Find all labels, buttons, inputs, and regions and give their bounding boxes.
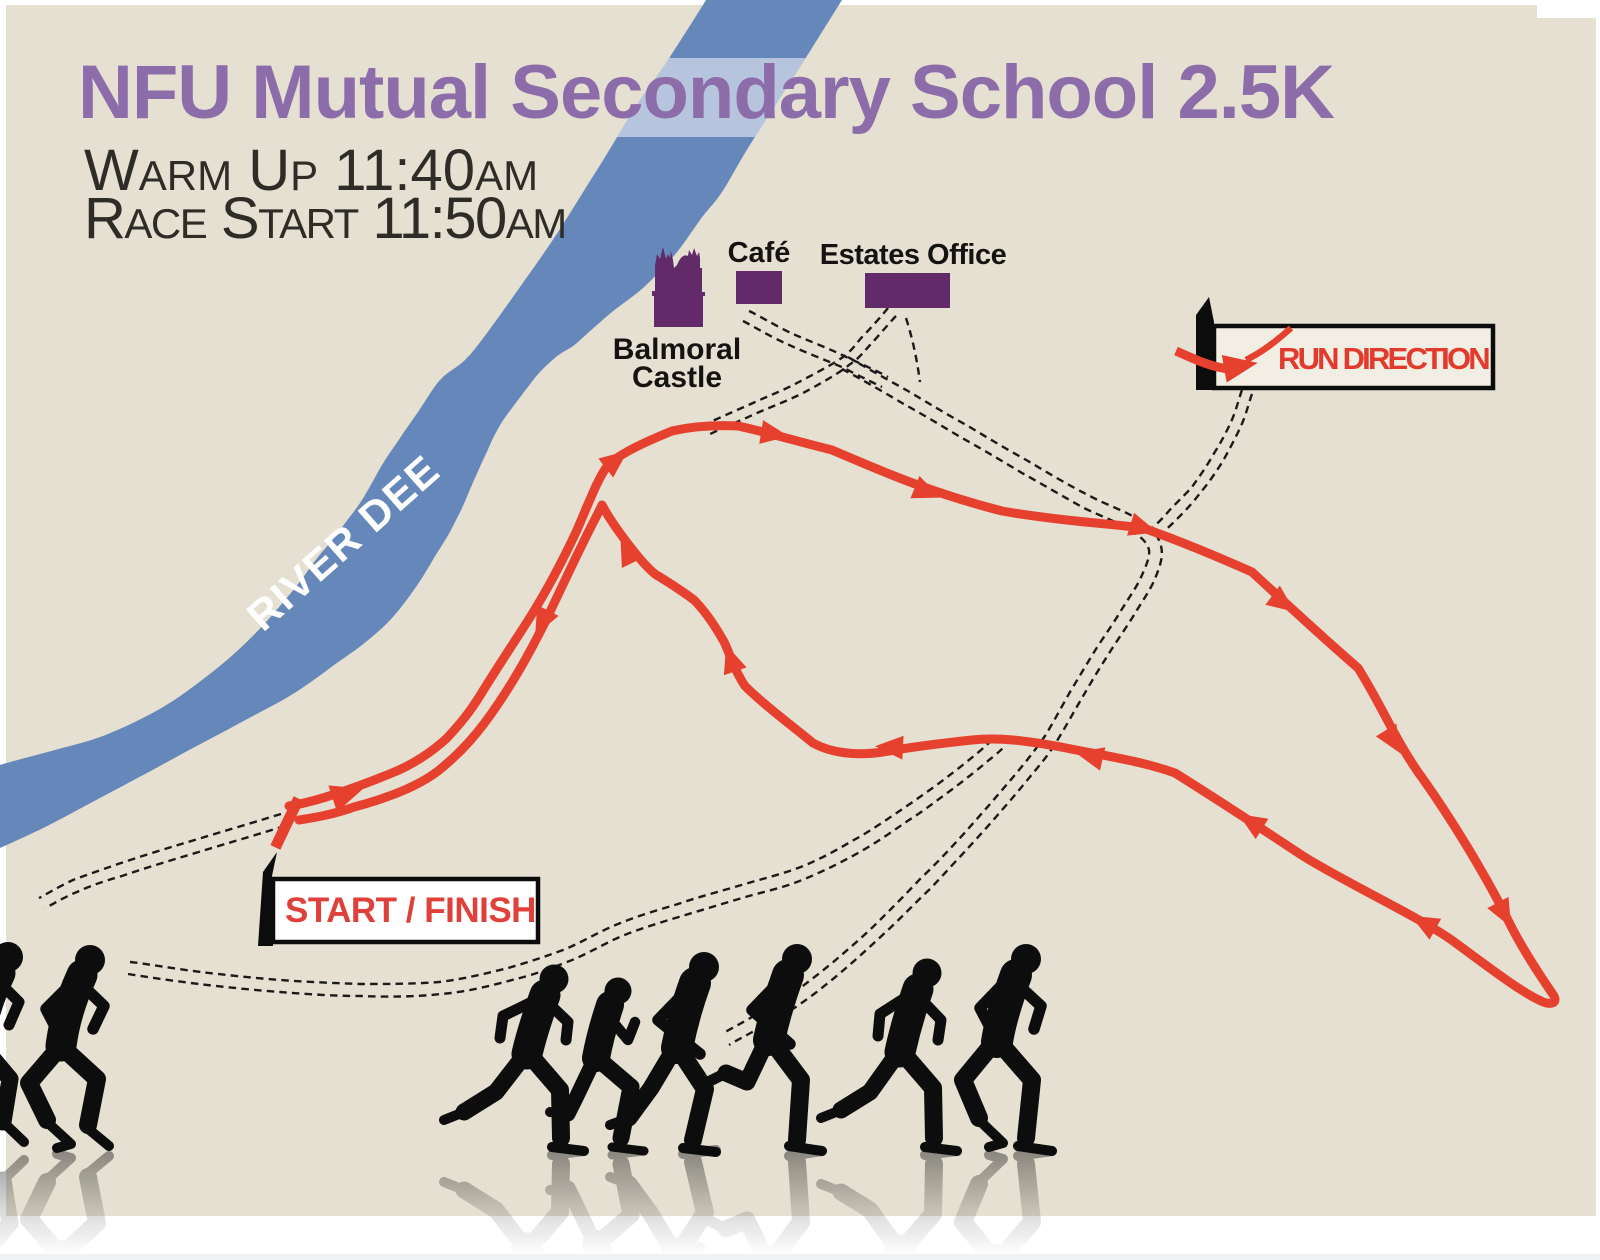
svg-text:Castle: Castle <box>632 361 722 394</box>
svg-text:RUN DIRECTION: RUN DIRECTION <box>1278 341 1489 376</box>
svg-text:Estates Office: Estates Office <box>820 239 1007 271</box>
svg-text:START / FINISH: START / FINISH <box>285 891 536 930</box>
svg-text:Café: Café <box>728 237 791 269</box>
svg-text:NFU Mutual Secondary School 2.: NFU Mutual Secondary School 2.5K <box>78 50 1335 135</box>
